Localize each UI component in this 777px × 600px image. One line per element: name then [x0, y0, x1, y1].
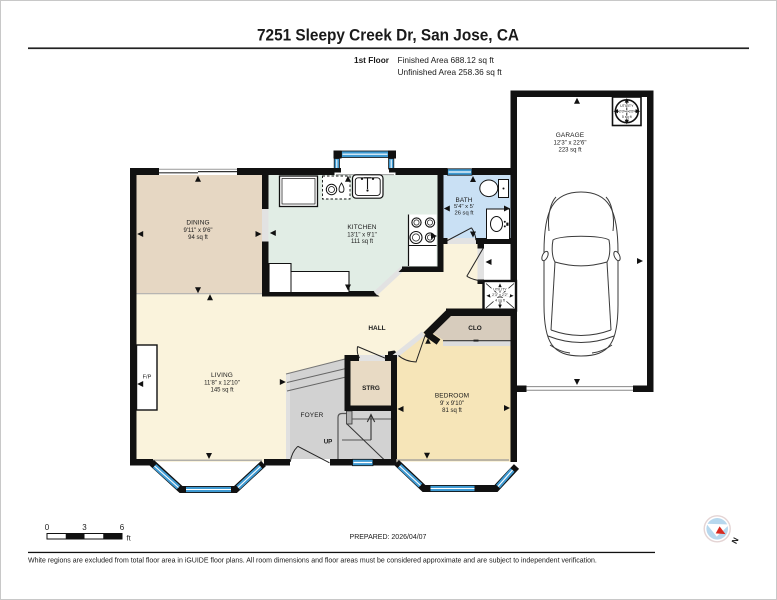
svg-text:STRG: STRG: [362, 385, 380, 392]
svg-text:CLO: CLO: [468, 325, 482, 332]
svg-text:0: 0: [45, 523, 50, 532]
svg-text:F/P: F/P: [143, 375, 152, 381]
svg-text:13'1" x 9'1": 13'1" x 9'1": [347, 233, 377, 239]
svg-text:DINING: DINING: [186, 220, 209, 227]
svg-text:GARAGE: GARAGE: [556, 132, 585, 139]
svg-text:PREPARED: 2026/04/07: PREPARED: 2026/04/07: [350, 534, 427, 541]
svg-text:UTILITY: UTILITY: [493, 288, 507, 292]
svg-text:Unfinished Area 258.36 sq ft: Unfinished Area 258.36 sq ft: [398, 67, 503, 77]
svg-text:9'11" x 9'6": 9'11" x 9'6": [183, 228, 212, 234]
svg-text:UP: UP: [324, 439, 333, 446]
svg-text:111 sq ft: 111 sq ft: [351, 239, 373, 245]
svg-text:9' x 9'10": 9' x 9'10": [440, 401, 464, 407]
svg-text:145 sq ft: 145 sq ft: [210, 388, 233, 394]
svg-text:Finished Area 688.12 sq ft: Finished Area 688.12 sq ft: [398, 55, 495, 65]
svg-text:12'3" x 22'6": 12'3" x 22'6": [554, 141, 587, 147]
svg-text:5 sq ft: 5 sq ft: [622, 115, 632, 119]
svg-text:6: 6: [120, 523, 125, 532]
svg-text:White regions are excluded fro: White regions are excluded from total fl…: [28, 558, 597, 565]
svg-text:3: 3: [82, 523, 87, 532]
svg-text:223 sq ft: 223 sq ft: [558, 148, 581, 154]
svg-text:LIVING: LIVING: [211, 372, 233, 379]
svg-text:BEDROOM: BEDROOM: [435, 393, 469, 400]
svg-text:5'4" x 5': 5'4" x 5': [454, 204, 474, 210]
svg-text:KITCHEN: KITCHEN: [347, 224, 376, 231]
svg-text:11'8" x 12'10": 11'8" x 12'10": [204, 381, 240, 387]
svg-text:BATH: BATH: [456, 197, 473, 204]
svg-text:2'3" x 2'2": 2'3" x 2'2": [619, 110, 635, 114]
svg-text:2'3" x 2'2": 2'3" x 2'2": [492, 293, 508, 297]
svg-text:94 sq ft: 94 sq ft: [188, 235, 208, 241]
svg-text:HALL: HALL: [368, 325, 385, 332]
svg-text:FOYER: FOYER: [301, 412, 324, 419]
svg-text:81 sq ft: 81 sq ft: [442, 408, 462, 414]
svg-text:UTILITY: UTILITY: [620, 104, 634, 108]
svg-text:1st Floor: 1st Floor: [354, 55, 390, 65]
svg-text:26 sq ft: 26 sq ft: [454, 210, 473, 216]
svg-text:7251 Sleepy Creek Dr, San Jose: 7251 Sleepy Creek Dr, San Jose, CA: [257, 26, 519, 45]
svg-text:4 sq ft: 4 sq ft: [495, 298, 505, 302]
